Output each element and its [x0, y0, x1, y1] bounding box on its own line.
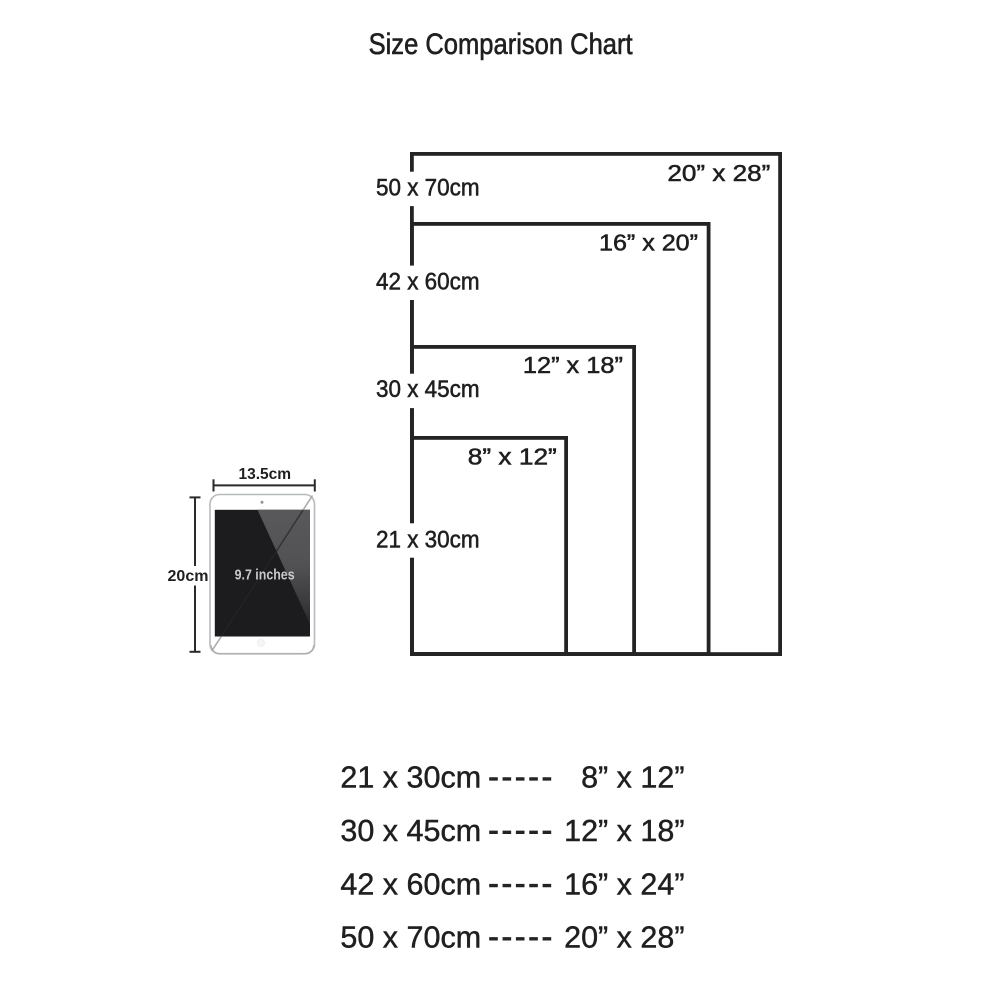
- svg-text:42 x 60cm: 42 x 60cm: [340, 867, 481, 901]
- svg-text:Size Comparison Chart: Size Comparison Chart: [369, 29, 633, 61]
- svg-text:20cm: 20cm: [168, 568, 209, 585]
- svg-text:21 x 30cm: 21 x 30cm: [376, 527, 480, 554]
- svg-text:21 x 30cm: 21 x 30cm: [340, 761, 481, 795]
- svg-text:16” x 24”: 16” x 24”: [564, 867, 684, 901]
- svg-text:8” x 12”: 8” x 12”: [468, 443, 557, 469]
- svg-text:9.7 inches: 9.7 inches: [235, 567, 295, 583]
- svg-text:50 x 70cm: 50 x 70cm: [340, 921, 481, 955]
- svg-text:42 x 60cm: 42 x 60cm: [376, 268, 480, 295]
- svg-text:30 x 45cm: 30 x 45cm: [340, 814, 481, 848]
- svg-text:16” x 20”: 16” x 20”: [599, 230, 698, 256]
- svg-text:50 x 70cm: 50 x 70cm: [376, 175, 480, 202]
- svg-text:20” x 28”: 20” x 28”: [564, 921, 684, 955]
- svg-text:13.5cm: 13.5cm: [239, 466, 292, 483]
- svg-text:12” x 18”: 12” x 18”: [523, 352, 623, 378]
- svg-text:12” x 18”: 12” x 18”: [564, 814, 684, 848]
- svg-text:8” x 12”: 8” x 12”: [581, 761, 684, 795]
- svg-text:30 x 45cm: 30 x 45cm: [376, 376, 480, 403]
- svg-text:20” x 28”: 20” x 28”: [667, 160, 770, 186]
